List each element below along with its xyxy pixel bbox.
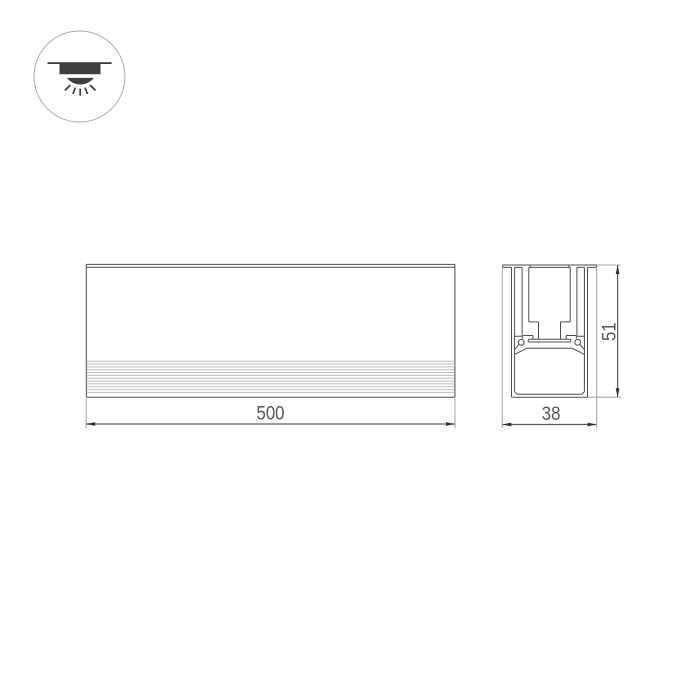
svg-text:38: 38 <box>542 402 561 425</box>
svg-text:500: 500 <box>257 401 285 424</box>
svg-text:51: 51 <box>597 322 620 341</box>
